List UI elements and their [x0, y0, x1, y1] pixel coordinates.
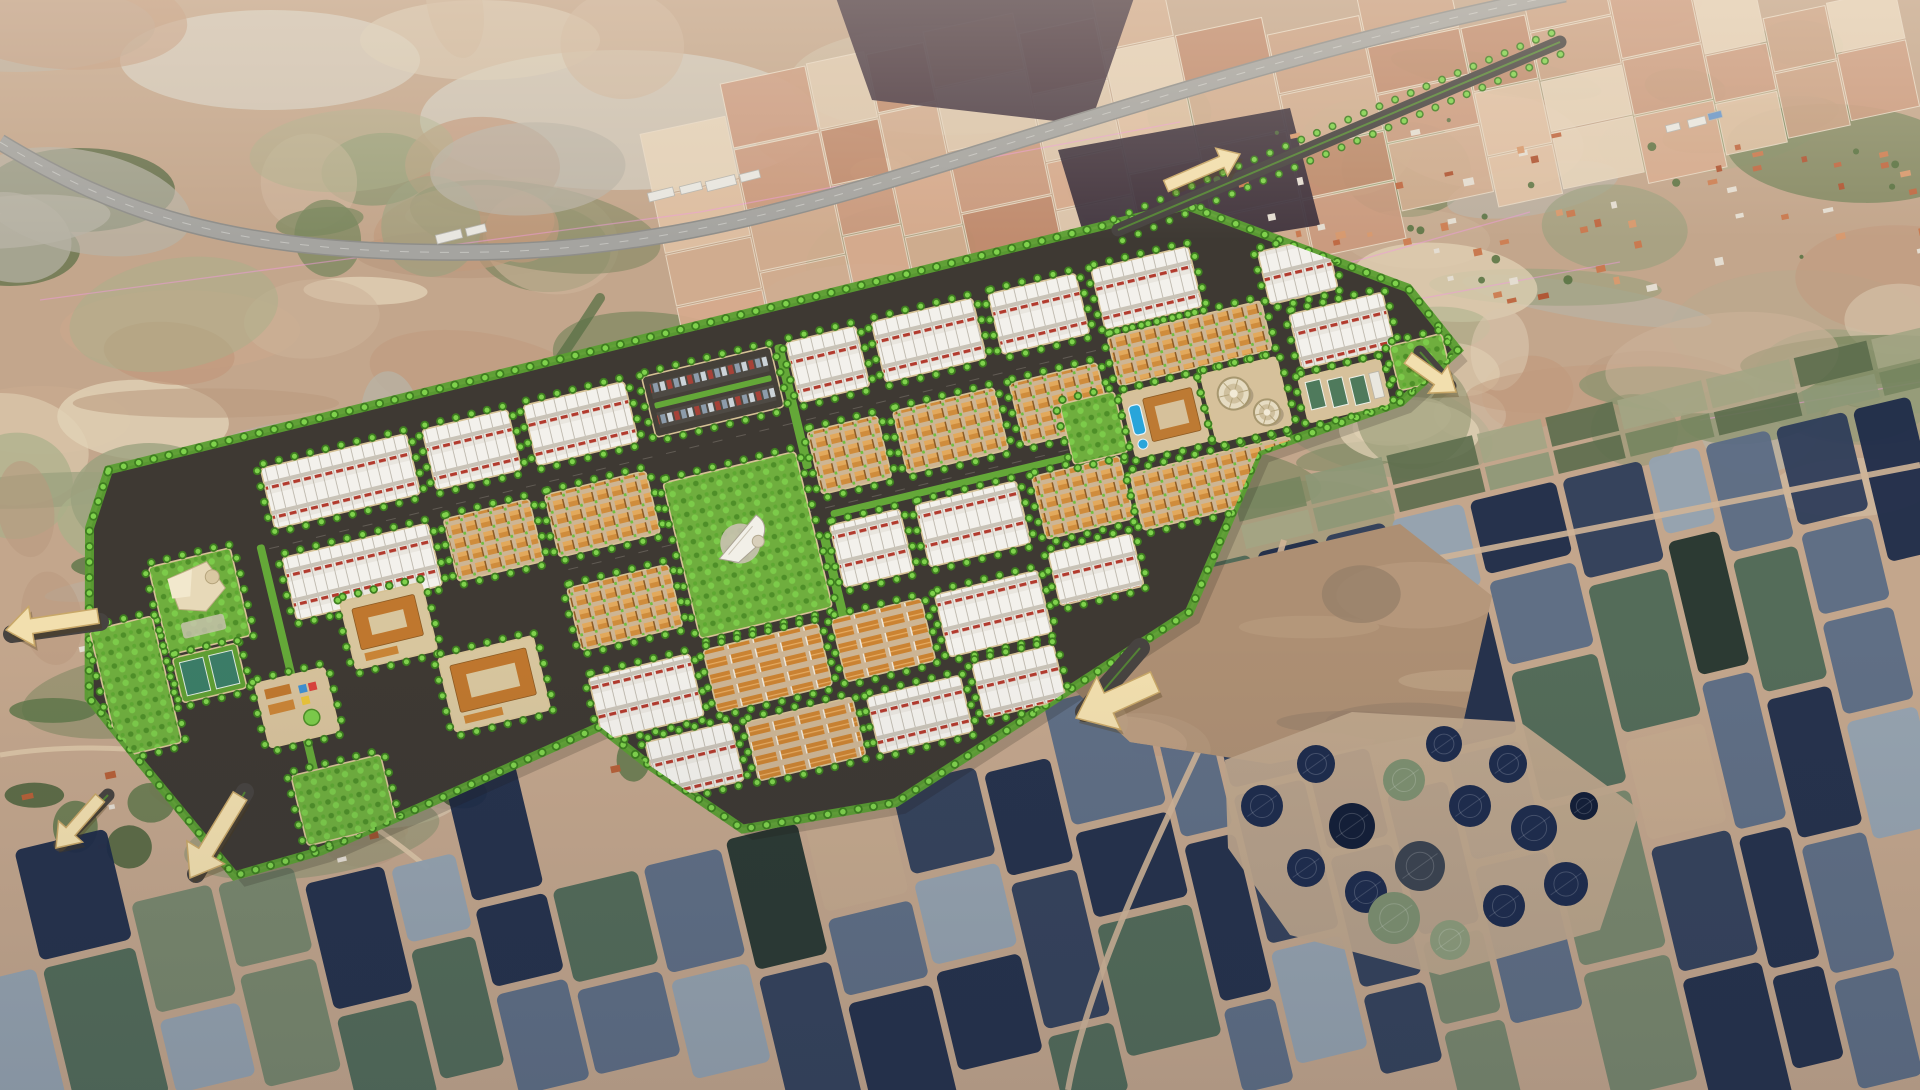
masterplan-aerial-render: Bird's-eye 3D rendering of a long linear… — [0, 0, 1920, 1090]
aerial-scene-canvas — [0, 0, 1920, 1090]
